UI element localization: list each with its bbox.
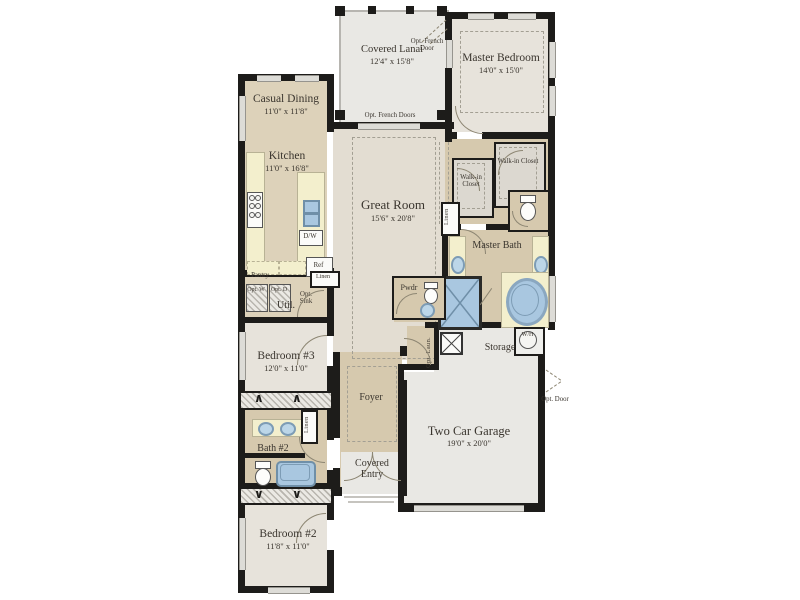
opt-door-dashes [544, 368, 564, 394]
cooktop-icon [247, 192, 263, 228]
dishwasher-label: D/W [299, 233, 321, 240]
opt-french-doors-label: Opt. French Doors [347, 112, 433, 119]
wall-segment [238, 317, 334, 323]
lanai-post [335, 6, 345, 16]
lanai-post [368, 6, 376, 14]
window [239, 332, 246, 380]
room-label-great-room: Great Room 15'6" x 20'8" [346, 198, 440, 223]
window [239, 518, 246, 570]
island-sink-icon [303, 213, 320, 227]
toilet-icon [255, 468, 271, 486]
closet-rod-icon: ∨ [292, 487, 302, 501]
room-label-covered-entry: Covered Entry [346, 458, 398, 480]
room-label-walk-in-closet-right: Walk-in Closet [496, 158, 540, 165]
window [295, 75, 319, 82]
opt-french-door-opening [446, 40, 453, 68]
wall-segment [445, 12, 555, 19]
window [549, 276, 556, 322]
room-label-foyer: Foyer [348, 392, 394, 403]
window [549, 42, 556, 78]
lanai-post [406, 6, 414, 14]
closet-rod-icon: ∧ [292, 391, 302, 405]
window [508, 13, 536, 20]
room-label-bath2: Bath #2 [250, 443, 296, 454]
kitchen-counter [279, 261, 306, 275]
refrigerator-label: Ref [306, 262, 331, 269]
room-label-garage: Two Car Garage 19'0" x 20'0" [404, 424, 534, 449]
burner-icon [255, 203, 261, 209]
bathtub-inner-ring [280, 464, 310, 481]
pantry-label: Pantry [243, 272, 277, 279]
laundry-tub-icon [440, 332, 463, 355]
entry-step [348, 501, 394, 503]
window [549, 86, 556, 116]
toilet-icon [424, 288, 438, 304]
entry-step [344, 496, 398, 498]
entry-post [333, 487, 342, 496]
room-label-bedroom2: Bedroom #2 11'8" x 11'0" [248, 528, 328, 551]
sink-icon [420, 303, 435, 318]
sink-icon [451, 256, 465, 274]
room-label-util: Util. [266, 300, 306, 311]
opt-door-label: Opt. Door [541, 396, 569, 403]
sink-icon [280, 422, 296, 436]
linen-label: Linen [310, 274, 336, 281]
room-label-kitchen: Kitchen 11'0" x 16'8" [250, 150, 324, 173]
linen-label: Linen [443, 204, 450, 230]
opt-dryer-label: Opt. D [269, 287, 289, 294]
room-label-master-bedroom: Master Bedroom 14'0" x 15'0" [462, 52, 540, 75]
sink-icon [258, 422, 274, 436]
window [257, 75, 281, 82]
opt-french-doors-opening [358, 123, 420, 130]
closet-rod-icon: ∨ [254, 487, 264, 501]
room-label-pwdr: Pwdr [394, 284, 424, 293]
room-label-walk-in-closet-left: Walk-in Closet [451, 174, 491, 189]
island-sink-icon [303, 200, 320, 214]
wall-segment [238, 74, 334, 81]
window [468, 13, 494, 20]
wall-segment [445, 68, 452, 124]
closet-rod-icon: ∧ [254, 391, 264, 405]
opt-washer-label: Opt. W [246, 287, 266, 294]
lanai-post [335, 110, 345, 120]
room-label-bedroom3: Bedroom #3 12'0" x 11'0" [246, 350, 326, 373]
wall-segment [327, 550, 334, 593]
water-heater-label: W/H [514, 332, 541, 339]
wall-segment [482, 132, 555, 139]
room-label-storage: Storage [470, 342, 530, 353]
burner-icon [255, 195, 261, 201]
room-label-master-bath: Master Bath [472, 240, 522, 251]
room-label-casual-dining: Casual Dining 11'0" x 11'8" [243, 93, 329, 116]
bathtub-inner-ring [511, 284, 539, 316]
garage-door [414, 505, 524, 512]
wall-segment [434, 326, 439, 370]
opt-french-door-label: Opt. French Door [410, 38, 444, 53]
wall-segment [333, 352, 340, 438]
window [268, 587, 310, 594]
wall-segment [445, 132, 457, 139]
burner-icon [255, 212, 261, 218]
floor-plan: ∧ ∧ ∨ ∨ Linen [0, 0, 800, 600]
great-room-tray-outline [352, 137, 436, 359]
foyer-tray-outline [347, 366, 397, 442]
linen-label: Linen [303, 412, 310, 438]
